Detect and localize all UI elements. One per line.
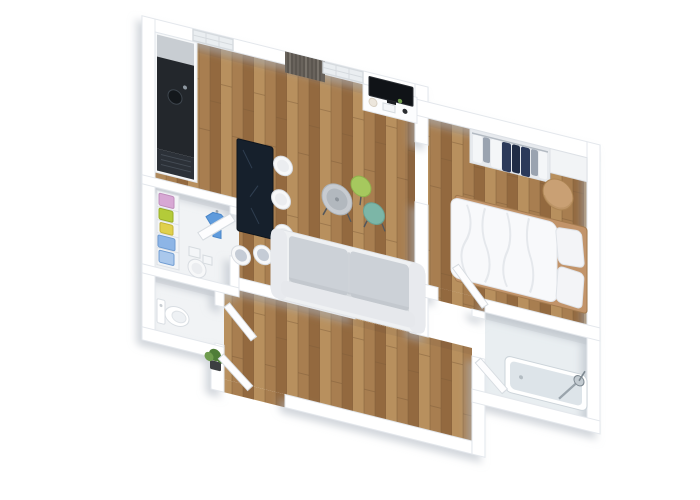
wall-wc-right-a (215, 291, 224, 307)
toilet-tank (157, 298, 165, 324)
garment (539, 151, 547, 180)
pillow (555, 227, 584, 268)
apartment (142, 16, 600, 486)
garment (491, 139, 501, 169)
pillow (556, 266, 584, 310)
floor-box (203, 255, 212, 265)
wc-doorway-floor (215, 305, 224, 345)
garment (473, 134, 482, 163)
garment (531, 149, 538, 177)
garment (502, 142, 511, 173)
dark-countertop (157, 56, 194, 157)
floor-plan-render: 3D floor plan rendering of a one-bedroom… (0, 0, 700, 500)
garment (512, 144, 520, 174)
garment (521, 146, 530, 177)
wall-bedroom-right (587, 142, 600, 434)
table-leg (360, 196, 361, 205)
floor-plan-svg: 3D floor plan rendering of a one-bedroom… (0, 0, 700, 500)
garment (483, 137, 490, 164)
